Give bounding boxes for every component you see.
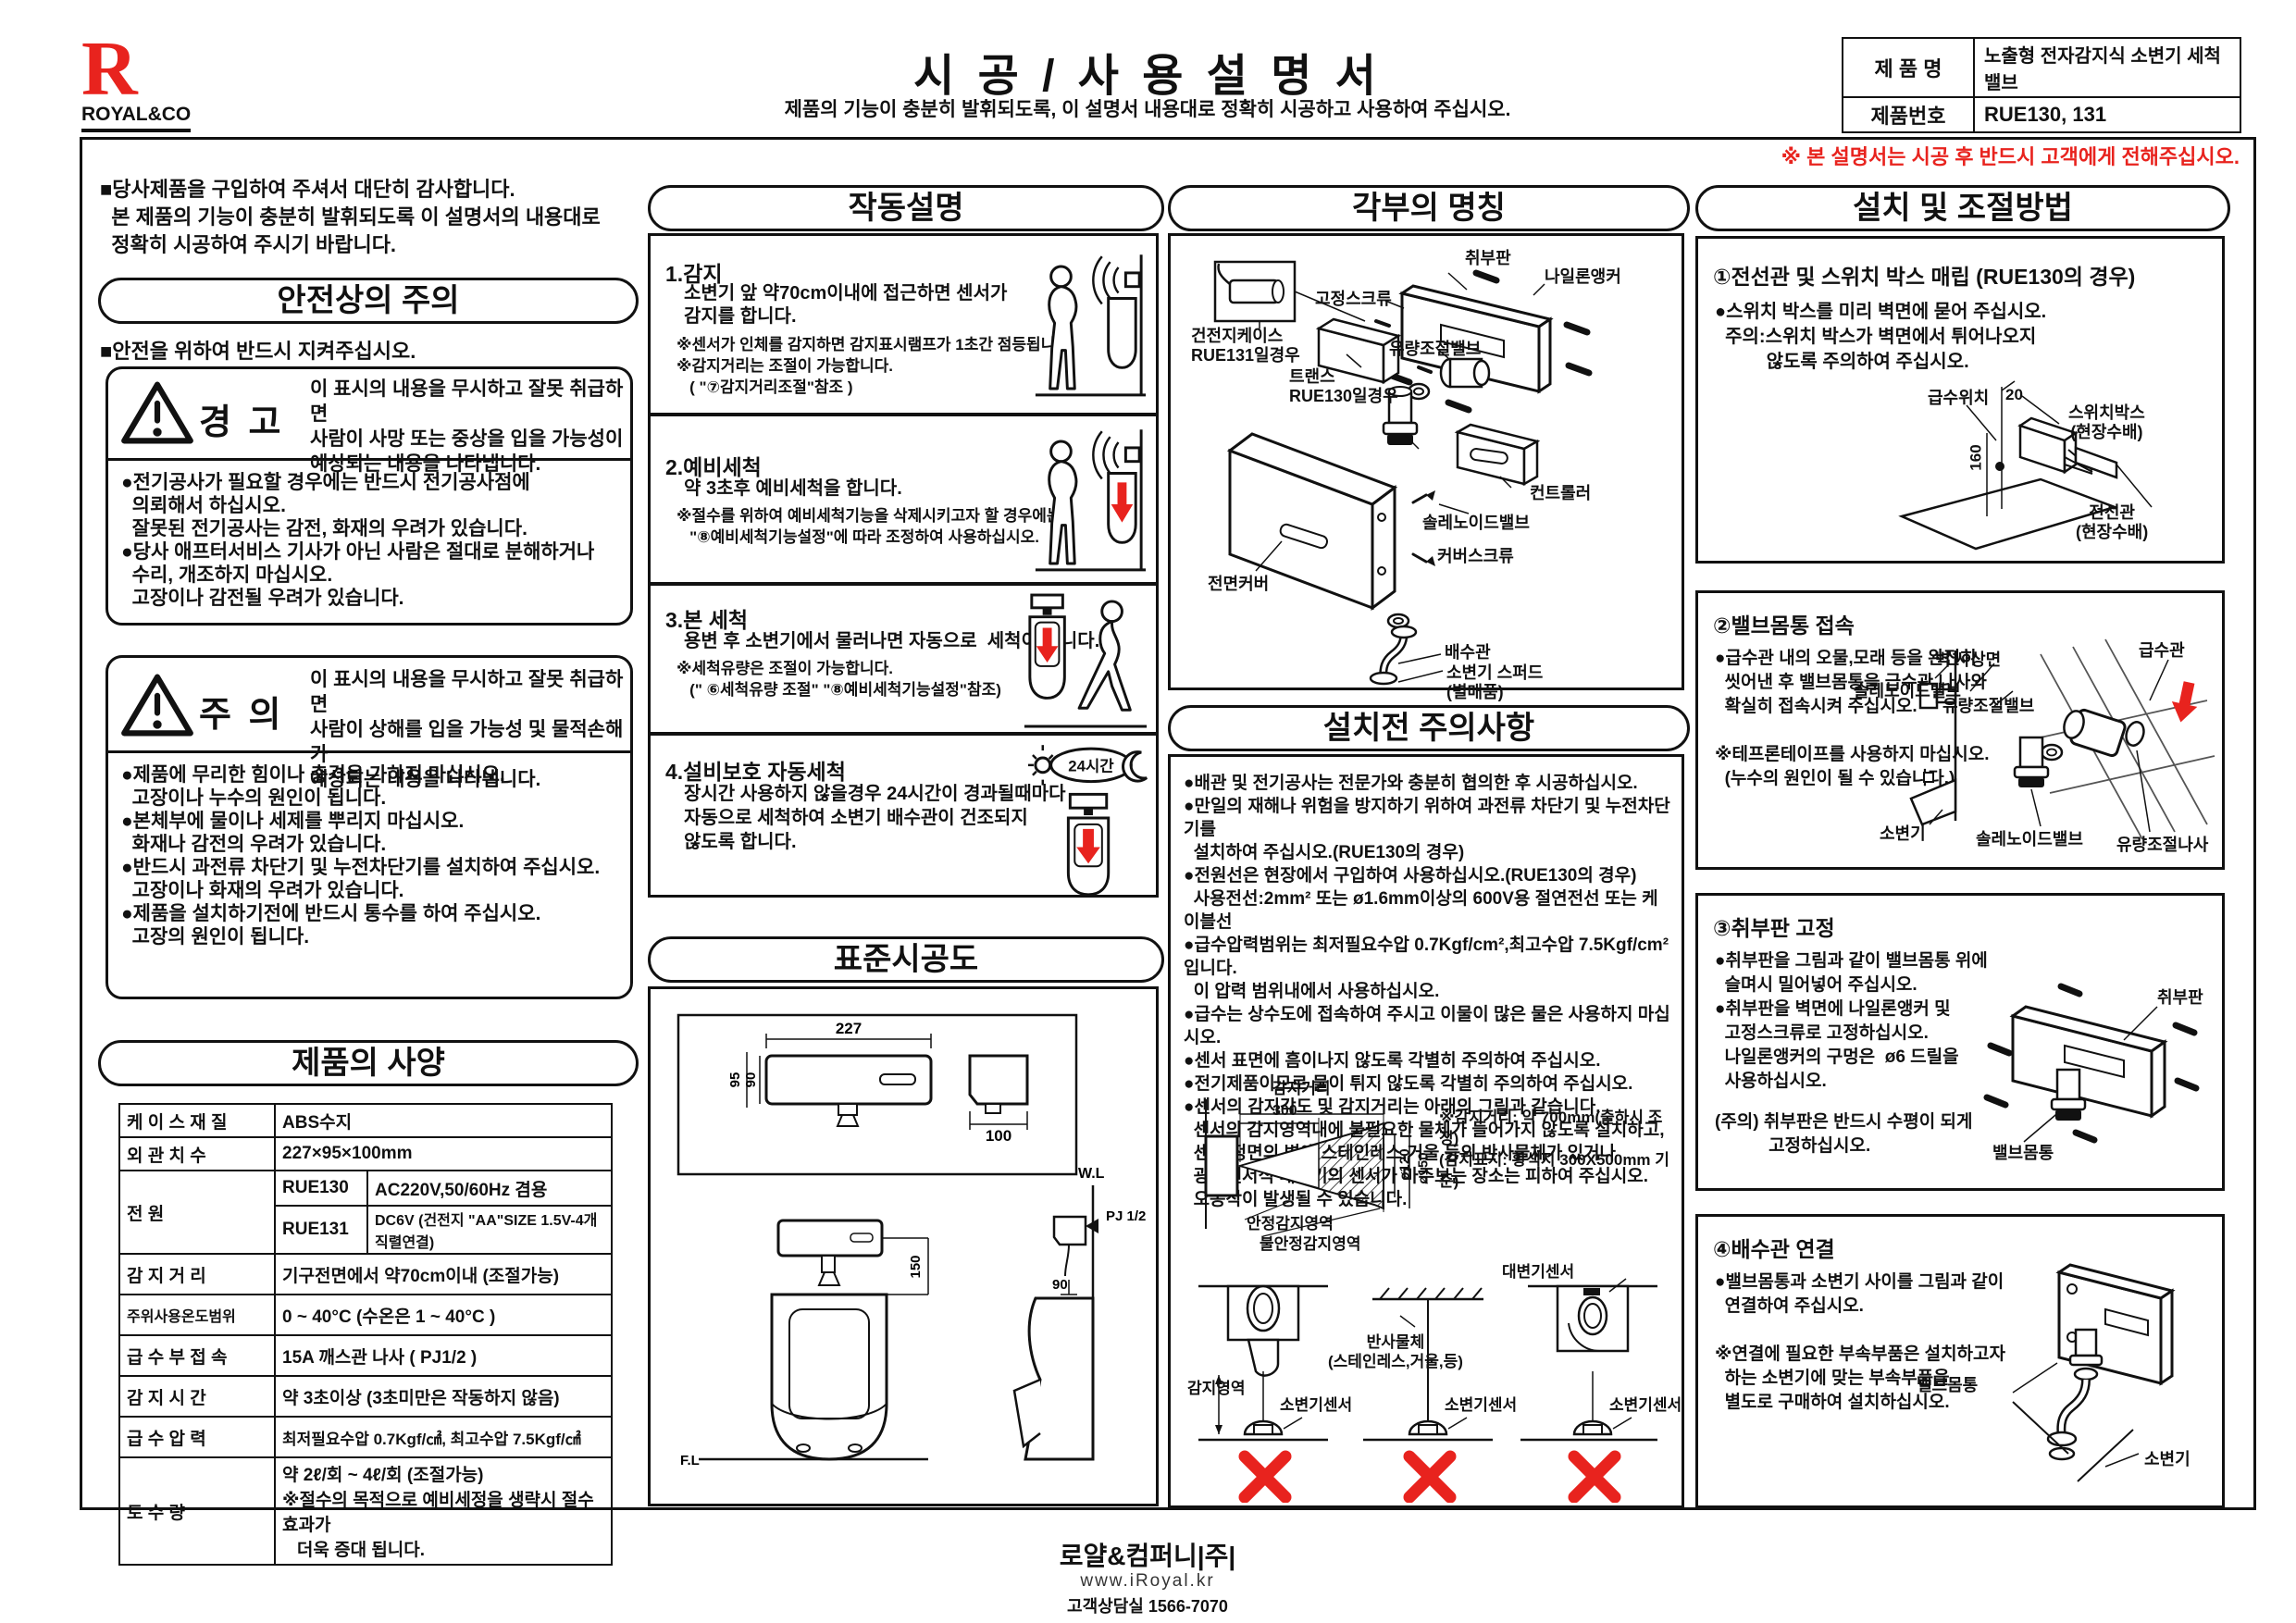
step-body: 소변기 앞 약70cm이내에 접근하면 센서가 감지를 합니다. — [684, 282, 1007, 328]
spec-table: 케 이 스 재 질 ABS수지 외 관 치 수 227×95×100mm 전 원… — [118, 1103, 613, 1566]
part-label-screw: 고정스크류 — [1315, 290, 1392, 309]
label-solenoid-2: 솔레노이드밸브 — [1976, 830, 2083, 849]
dim-100: 100 — [986, 1127, 1011, 1145]
install-step-1: ①전선관 및 스위치 박스 매립 (RUE130의 경우) ●스위치 박스를 미… — [1695, 236, 2225, 564]
install-section-title: 설치 및 조절방법 — [1695, 185, 2230, 231]
dim-90b: 90 — [1052, 1277, 1068, 1293]
warning-desc: 이 표시의 내용을 무시하고 잘못 취급하면 사람이 사망 또는 중상을 입을 … — [310, 377, 630, 477]
label-pj: PJ 1/2 — [1106, 1208, 1146, 1224]
product-no-value: RUE130, 131 — [1974, 97, 2240, 132]
footer-company: 로얄&컴퍼니|주| — [592, 1536, 1703, 1573]
spec-label: 외 관 치 수 — [119, 1137, 275, 1171]
spec-value: DC6V (건전지 "AA"SIZE 1.5V-4개 직렬연결) — [367, 1206, 612, 1254]
part-label-spud: 소변기 스퍼드 (별매품) — [1446, 663, 1543, 702]
standard-drawing-box: 227 95 90 100 150 — [648, 986, 1159, 1506]
avoid-sensor2-label: 소변기센서 — [1445, 1395, 1517, 1415]
avoid-toilet-sensor-label: 대변기센서 — [1502, 1262, 1574, 1282]
avoid-cases-diagram — [1191, 1271, 1665, 1503]
label-switchbox: 스위치박스 (현장수배) — [2068, 403, 2145, 442]
label-flow-valve: 유량조절밸브 — [1942, 697, 2034, 716]
caution-items: ●제품에 무리한 힘이나 충격을 가하지 마십시오. 고장이나 누수의 원인이 … — [121, 763, 621, 948]
spec-label: 케 이 스 재 질 — [119, 1104, 275, 1137]
spec-value: 기구전면에서 약70cm이내 (조절가능) — [275, 1254, 612, 1295]
parts-exploded-diagram — [1171, 236, 1682, 688]
operation-section-title: 작동설명 — [648, 185, 1164, 231]
part-label-cover-screw: 커버스크류 — [1437, 547, 1514, 566]
label-fl: F.L — [680, 1453, 700, 1468]
install-step-body: ●스위치 박스를 미리 벽면에 묻어 주십시오. 주의:스위치 박스가 벽면에서… — [1715, 300, 2046, 375]
spec-label: 급 수 압 력 — [119, 1417, 275, 1457]
part-label-solenoid: 솔레노이드밸브 — [1422, 514, 1530, 533]
footer-phone: 고객상담실 1566-7070 — [592, 1593, 1703, 1617]
install-step-heading: ②밸브몸통 접속 — [1713, 608, 1855, 639]
spec-value: 약 2ℓ/회 ~ 4ℓ/회 (조절가능) ※절수의 목적으로 예비세정을 생략시… — [275, 1457, 612, 1565]
label-flow-screw: 유량조절나사 — [2116, 836, 2208, 855]
spec-value: AC220V,50/60Hz 겸용 — [367, 1171, 612, 1206]
caution-label: 주 의 — [199, 686, 284, 737]
operation-step-3: 3.본 세척 용변 후 소변기에서 물러나면 자동으로 세척이 됩니다. ※세척… — [648, 583, 1159, 735]
step-note: ※절수를 위하여 예비세척기능을 삭제시키고자 할 경우에는 "⑧예비세척기능설… — [676, 505, 1061, 548]
sensor-d300: 300 — [1272, 1101, 1297, 1121]
step-body: 장시간 사용하지 않을경우 24시간이 경과될때마다 자동으로 세척하여 소변기… — [684, 782, 1065, 854]
part-label-drain: 배수관 — [1445, 643, 1491, 663]
standard-drawing: 227 95 90 100 150 — [651, 989, 1156, 1504]
part-label-front-cover: 전면커버 — [1208, 575, 1269, 594]
install-step-3: ③취부판 고정 ●취부판을 그림과 같이 밸브몸통 위에 슬며시 밀어넣어 주십… — [1695, 893, 2225, 1191]
warning-triangle-icon — [121, 380, 193, 445]
spec-value: 15A 깨스관 나사 ( PJ1/2 ) — [275, 1335, 612, 1376]
avoid-area-label: 감지영역 — [1187, 1379, 1246, 1398]
part-label-anchor: 나일론앵커 — [1545, 267, 1621, 287]
brand-logo: R ROYAL&CO — [81, 35, 202, 132]
spec-label: 토 수 량 — [119, 1457, 275, 1565]
label-plate: 취부판 — [2157, 988, 2203, 1008]
spec-value: 0 ~ 40°C (수온은 1 ~ 40°C ) — [275, 1295, 612, 1335]
product-name-value: 노출형 전자감지식 소변기 세척밸브 — [1974, 38, 2240, 97]
product-info-table: 제 품 명 노출형 전자감지식 소변기 세척밸브 제품번호 RUE130, 13… — [1842, 37, 2241, 133]
install-step-note: (주의) 취부판은 반드시 수평이 되게 고정하십시오. — [1715, 1110, 1973, 1158]
spec-value: 최저필요수압 0.7Kgf/㎠, 최고수압 7.5Kgf/㎠ — [275, 1417, 612, 1457]
page-subtitle: 제품의 기능이 충분히 발휘되도록, 이 설명서 내용대로 정확히 시공하고 사… — [592, 94, 1703, 122]
auto-flush-24h-pictogram: 24시간 — [1028, 741, 1154, 897]
dim-95: 95 — [727, 1072, 743, 1088]
parts-section-title: 각부의 명칭 — [1168, 185, 1690, 231]
part-label-plate: 취부판 — [1465, 249, 1511, 268]
install-step-2: ②밸브몸통 접속 ●급수관 내의 오물,모래 등을 완전히 씻어낸 후 밸브몸통… — [1695, 590, 2225, 870]
step-title: 4.설비보호 자동세척 — [665, 754, 846, 786]
precautions-box: ●배관 및 전기공사는 전문가와 충분히 협의한 후 시공하십시오. ●만일의 … — [1168, 754, 1684, 1508]
brand-logo-text: ROYAL&CO — [81, 104, 191, 132]
spec-section-title: 제품의 사양 — [98, 1040, 639, 1086]
warning-items: ●전기공사가 필요할 경우에는 반드시 전기공사점에 의뢰해서 하십시오. 잘못… — [121, 471, 621, 610]
caution-box: 주 의 이 표시의 내용을 무시하고 잘못 취급하면 사람이 상해를 입을 가능… — [105, 655, 633, 999]
flush-walkaway-pictogram — [1021, 591, 1150, 732]
operation-step-2: 2.예비세척 약 3초후 예비세척을 합니다. ※절수를 위하여 예비세척기능을… — [648, 414, 1159, 585]
safety-keep-note: ■안전을 위하여 반드시 지켜주십시오. — [100, 335, 416, 365]
preflush-pictogram — [1030, 426, 1148, 579]
spec-value: ABS수지 — [275, 1104, 612, 1137]
label-supply-pipe: 급수관 — [2139, 641, 2185, 661]
avoid-sensor1-label: 소변기센서 — [1280, 1395, 1352, 1415]
install-step-body: ●취부판을 그림과 같이 밸브몸통 위에 슬며시 밀어넣어 주십시오. ●취부판… — [1715, 949, 1988, 1094]
product-name-label: 제 품 명 — [1843, 38, 1974, 97]
install-step-heading: ④배수관 연결 — [1713, 1232, 1835, 1263]
label-conduit: 전선관 (현장수배) — [2076, 503, 2148, 542]
part-label-battery-case: 건전지케이스 RUE131일경우 — [1191, 327, 1300, 365]
label-valve-body-2: 밸브몸통 — [1917, 1376, 1978, 1395]
product-no-label: 제품번호 — [1843, 97, 1974, 132]
dim-90: 90 — [743, 1072, 759, 1088]
sensor-unstable-label: 불안정감지영역 — [1260, 1234, 1360, 1254]
label-supply-position: 급수위치 — [1928, 389, 1989, 408]
precautions-section-title: 설치전 주의사항 — [1168, 705, 1690, 751]
sensor-d120: ø120 — [1396, 1148, 1415, 1180]
install-step-heading: ③취부판 고정 — [1713, 911, 1835, 942]
part-label-flow-valve: 유량조절밸브 — [1389, 340, 1481, 359]
part-label-trans: 트랜스 RUE130일경우 — [1289, 367, 1398, 406]
sensing-pictogram — [1030, 251, 1148, 404]
sensor-d150: ø150 — [1414, 1152, 1433, 1183]
label-urinal-2: 소변기 — [2144, 1450, 2191, 1469]
dim-227: 227 — [836, 1020, 862, 1037]
brand-logo-icon: R — [81, 35, 202, 104]
label-dim-20: 20 — [2005, 385, 2023, 404]
spec-value: 227×95×100mm — [275, 1137, 612, 1171]
label-valve-body: 밸브몸통 — [1992, 1144, 2054, 1163]
part-label-controller: 컨트롤러 — [1530, 484, 1591, 503]
dim-150: 150 — [908, 1255, 924, 1278]
spec-label: 전 원 — [119, 1171, 275, 1254]
parts-diagram-box: 취부판 나일론앵커 고정스크류 건전지케이스 RUE131일경우 트랜스 RUE… — [1168, 233, 1684, 690]
install-step-4: ④배수관 연결 ●밸브몸통과 소변기 사이를 그림과 같이 연결하여 주십시오.… — [1695, 1214, 2225, 1508]
avoid-sensor3-label: 소변기센서 — [1609, 1395, 1682, 1415]
caution-triangle-icon — [121, 673, 193, 737]
warning-box: 경 고 이 표시의 내용을 무시하고 잘못 취급하면 사람이 사망 또는 중상을… — [105, 366, 633, 626]
install-step-heading: ①전선관 및 스위치 박스 매립 (RUE130의 경우) — [1713, 259, 2135, 291]
sensor-dist-label: 감지거리 — [1272, 1079, 1331, 1098]
standard-drawing-title: 표준시공도 — [648, 936, 1164, 983]
operation-step-4: 4.설비보호 자동세척 장시간 사용하지 않을경우 24시간이 경과될때마다 자… — [648, 733, 1159, 898]
avoid-reflect-label: 반사물체 (스테인레스,거울,등) — [1328, 1332, 1463, 1371]
footer-website: www.iRoyal.kr — [592, 1571, 1703, 1592]
step-note: ※센서가 인체를 감지하면 감지표시램프가 1초간 점등됩니다. ※감지거리는 … — [676, 334, 1074, 398]
label-wall-face: 벽 사상면 — [1935, 650, 2001, 670]
manual-page: R ROYAL&CO 시 공 / 사 용 설 명 서 제품의 기능이 충분히 발… — [0, 0, 2296, 1623]
sensor-note: ※감지거리: 약 700mm(출하시 조정) (감지표지: 황색지 300X50… — [1439, 1107, 1680, 1192]
label-dim-160: 160 — [1967, 444, 1986, 470]
icon-24h-label: 24시간 — [1068, 758, 1114, 775]
safety-section-title: 안전상의 주의 — [98, 278, 639, 324]
spec-value: 약 3초이상 (3초미만은 작동하지 않음) — [275, 1376, 612, 1417]
spec-label: 급 수 부 접 속 — [119, 1335, 275, 1376]
label-urinal: 소변기 — [1880, 824, 1926, 844]
step-body: 약 3초후 예비세척을 합니다. — [684, 477, 902, 501]
step-title: 2.예비세척 — [665, 450, 762, 481]
spec-model: RUE131 — [275, 1206, 367, 1254]
step-note: ※세척유량은 조절이 가능합니다. (" ⑥세척유량 조절" "⑧예비세척기능설… — [676, 658, 1001, 700]
sensor-stable-label: 안정감지영역 — [1247, 1214, 1334, 1233]
label-wl: W.L — [1078, 1166, 1105, 1182]
spec-label: 주위사용온도범위 — [119, 1295, 275, 1335]
intro-text: ■당사제품을 구입하여 주셔서 대단히 감사합니다. 본 제품의 기능이 충분히… — [100, 176, 641, 259]
spec-label: 감 지 거 리 — [119, 1254, 275, 1295]
warning-label: 경 고 — [199, 393, 284, 444]
spec-label: 감 지 시 간 — [119, 1376, 275, 1417]
step-title: 3.본 세척 — [665, 602, 748, 634]
operation-step-1: 1.감지 소변기 앞 약70cm이내에 접근하면 센서가 감지를 합니다. ※센… — [648, 233, 1159, 415]
spec-model: RUE130 — [275, 1171, 367, 1206]
